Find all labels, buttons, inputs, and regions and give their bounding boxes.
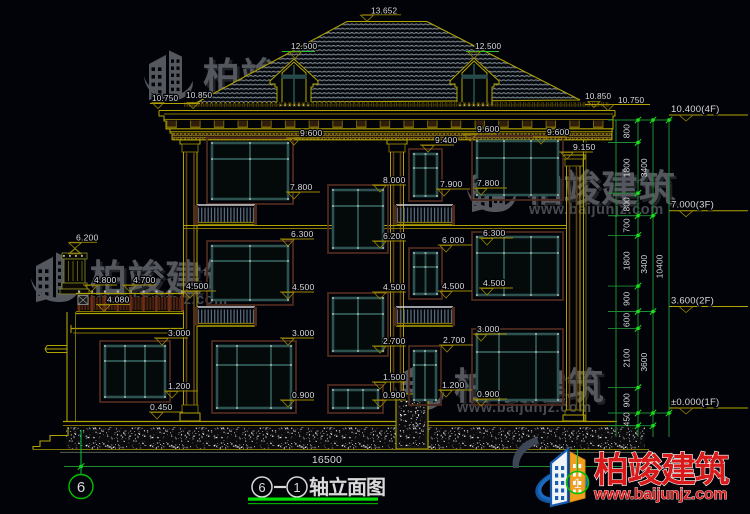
svg-text:7.800: 7.800 — [477, 178, 500, 188]
svg-text:7.900: 7.900 — [440, 179, 463, 189]
svg-text:700: 700 — [622, 218, 632, 232]
svg-text:轴立面图: 轴立面图 — [309, 475, 385, 499]
svg-text:6.000: 6.000 — [442, 235, 465, 245]
svg-text:4.500: 4.500 — [383, 282, 406, 292]
svg-text:1800: 1800 — [622, 251, 632, 270]
svg-text:900: 900 — [622, 393, 632, 407]
svg-text:3.600(2F): 3.600(2F) — [671, 296, 714, 307]
svg-text:9.150: 9.150 — [573, 142, 596, 152]
svg-text:6: 6 — [258, 480, 265, 495]
svg-text:1: 1 — [293, 480, 300, 495]
svg-text:4.700: 4.700 — [133, 275, 156, 285]
svg-text:900: 900 — [622, 291, 632, 305]
svg-text:10.850: 10.850 — [186, 91, 212, 100]
svg-text:3600: 3600 — [639, 352, 649, 371]
svg-text:600: 600 — [622, 313, 632, 327]
svg-text:800: 800 — [622, 124, 632, 138]
svg-text:10400: 10400 — [655, 254, 665, 278]
svg-text:柏竣建筑: 柏竣建筑 — [594, 450, 730, 490]
svg-text:0.900: 0.900 — [292, 390, 315, 400]
svg-text:0.900: 0.900 — [383, 390, 406, 400]
svg-text:10.750: 10.750 — [152, 94, 178, 103]
svg-text:6.200: 6.200 — [76, 233, 99, 243]
svg-text:450: 450 — [622, 412, 632, 426]
svg-text:0.900: 0.900 — [477, 389, 500, 399]
svg-text:3.000: 3.000 — [292, 328, 315, 338]
svg-text:3400: 3400 — [639, 158, 649, 177]
svg-text:7.000(3F): 7.000(3F) — [671, 200, 714, 211]
svg-text:1800: 1800 — [622, 158, 632, 177]
svg-text:10.850: 10.850 — [585, 92, 611, 101]
svg-text:4.500: 4.500 — [292, 282, 315, 292]
svg-text:4.500: 4.500 — [483, 278, 506, 288]
svg-text:2100: 2100 — [622, 348, 632, 367]
svg-text:10.750: 10.750 — [618, 96, 644, 105]
svg-text:9.600: 9.600 — [477, 124, 500, 134]
svg-text:12.500: 12.500 — [291, 42, 317, 51]
svg-text:800: 800 — [622, 197, 632, 211]
svg-text:±0.000(1F): ±0.000(1F) — [671, 397, 719, 408]
svg-text:8.000: 8.000 — [383, 175, 406, 185]
svg-text:4.800: 4.800 — [94, 275, 117, 285]
svg-text:6.300: 6.300 — [291, 229, 314, 239]
svg-text:9.600: 9.600 — [300, 128, 323, 138]
svg-text:6.300: 6.300 — [483, 228, 506, 238]
svg-text:1.500: 1.500 — [383, 372, 406, 382]
svg-text:3.000: 3.000 — [477, 324, 500, 334]
svg-text:2.700: 2.700 — [443, 335, 466, 345]
svg-text:9.400: 9.400 — [435, 135, 458, 145]
svg-text:12.500: 12.500 — [475, 42, 501, 51]
svg-text:10.400(4F): 10.400(4F) — [671, 104, 719, 115]
svg-text:2.700: 2.700 — [383, 336, 406, 346]
svg-text:4.080: 4.080 — [107, 295, 130, 305]
svg-text:3.000: 3.000 — [168, 328, 191, 338]
svg-text:16500: 16500 — [312, 454, 342, 466]
svg-text:1: 1 — [574, 475, 582, 491]
svg-text:6: 6 — [77, 479, 85, 496]
svg-text:0.450: 0.450 — [150, 402, 173, 412]
svg-text:3400: 3400 — [639, 255, 649, 274]
svg-text:6.200: 6.200 — [383, 231, 406, 241]
svg-text:7.800: 7.800 — [290, 182, 313, 192]
svg-text:4.500: 4.500 — [442, 281, 465, 291]
svg-text:1.200: 1.200 — [168, 381, 191, 391]
svg-text:www.baijunjz.com: www.baijunjz.com — [593, 486, 727, 503]
svg-text:www.baijunjz.com: www.baijunjz.com — [456, 400, 592, 416]
svg-text:9.600: 9.600 — [547, 127, 570, 137]
svg-text:13.652: 13.652 — [371, 7, 397, 16]
svg-text:1.200: 1.200 — [442, 380, 465, 390]
svg-text:4.500: 4.500 — [186, 281, 209, 291]
